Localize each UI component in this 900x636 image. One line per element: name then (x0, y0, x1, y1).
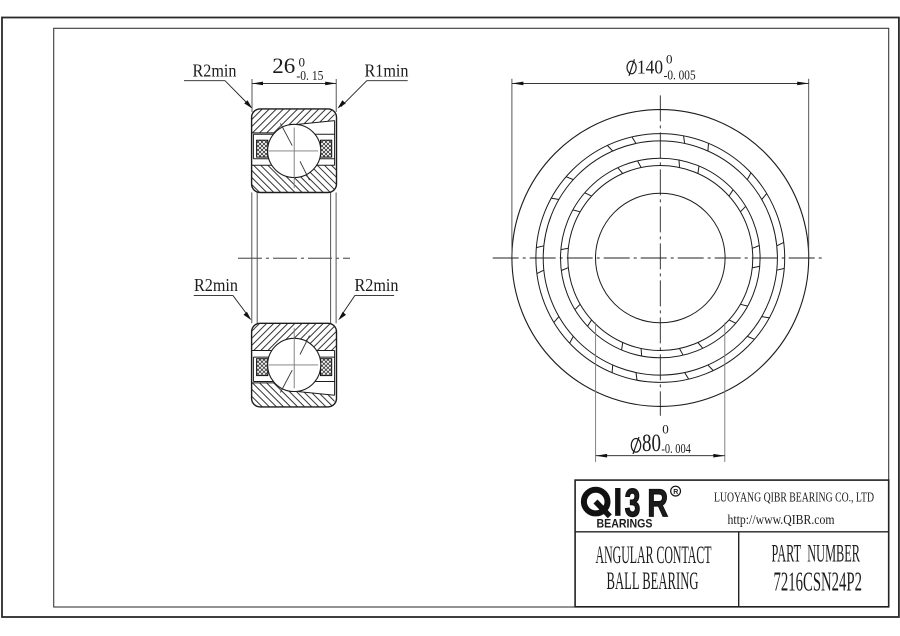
svg-text:0: 0 (662, 422, 669, 437)
svg-text:0: 0 (666, 51, 673, 66)
svg-text:LUOYANG QIBR BEARING CO., LTD: LUOYANG QIBR BEARING CO., LTD (714, 489, 874, 504)
svg-text:ANGULAR CONTACT: ANGULAR CONTACT (596, 542, 712, 569)
svg-text:-0. 004: -0. 004 (661, 441, 691, 456)
svg-text:80: 80 (642, 430, 661, 457)
svg-text:PART NUMBER: PART NUMBER (772, 540, 861, 567)
svg-text:R1min: R1min (365, 60, 409, 80)
svg-text:7216CSN24P2: 7216CSN24P2 (774, 566, 863, 596)
svg-text:R2min: R2min (193, 60, 237, 80)
svg-text:R2min: R2min (355, 275, 399, 295)
svg-text:R2min: R2min (194, 275, 238, 295)
svg-text:R: R (673, 489, 678, 496)
svg-text:BEARINGS: BEARINGS (597, 519, 653, 531)
svg-text:BALL BEARING: BALL BEARING (607, 568, 699, 595)
svg-text:-0. 15: -0. 15 (296, 68, 323, 83)
svg-text:140: 140 (637, 56, 663, 78)
svg-text:26: 26 (272, 53, 295, 78)
svg-text:http://www.QIBR.com: http://www.QIBR.com (728, 512, 835, 527)
svg-text:-0. 005: -0. 005 (664, 68, 696, 83)
